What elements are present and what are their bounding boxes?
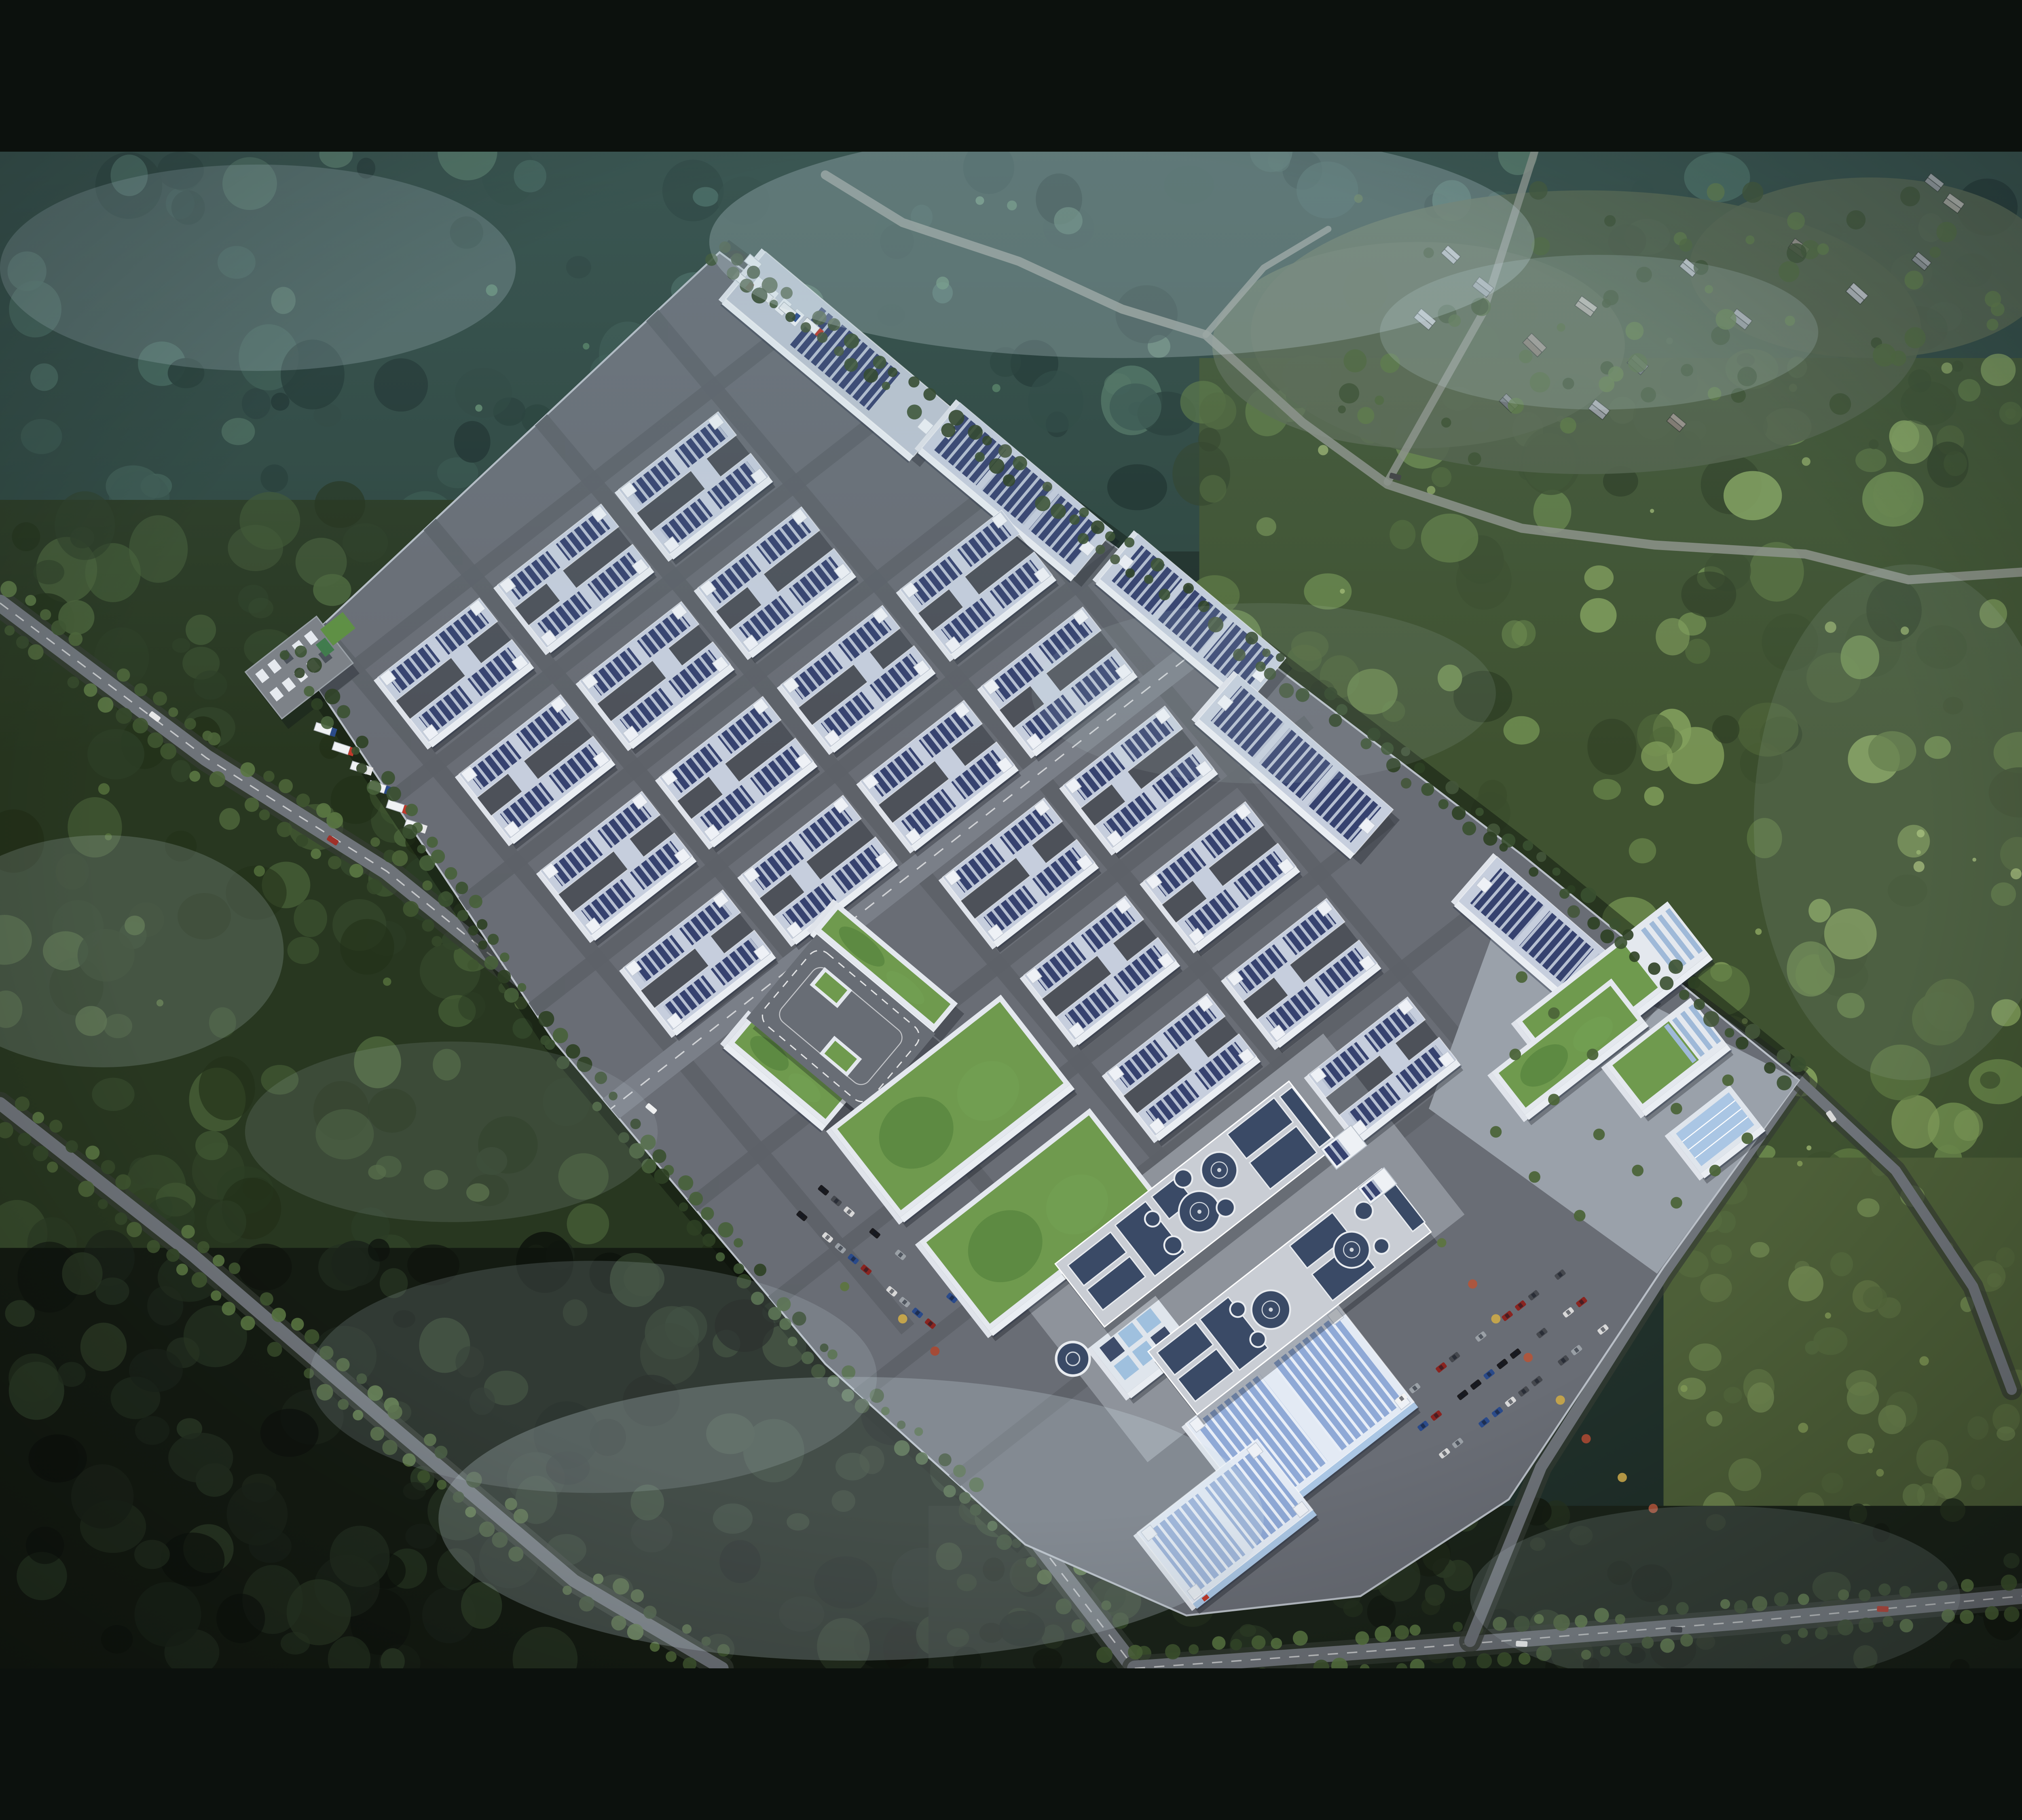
atmosphere-layer [0, 152, 2022, 1668]
aerial-site-plan-render [0, 0, 2022, 1820]
aerial-render-canvas [0, 152, 2022, 1668]
